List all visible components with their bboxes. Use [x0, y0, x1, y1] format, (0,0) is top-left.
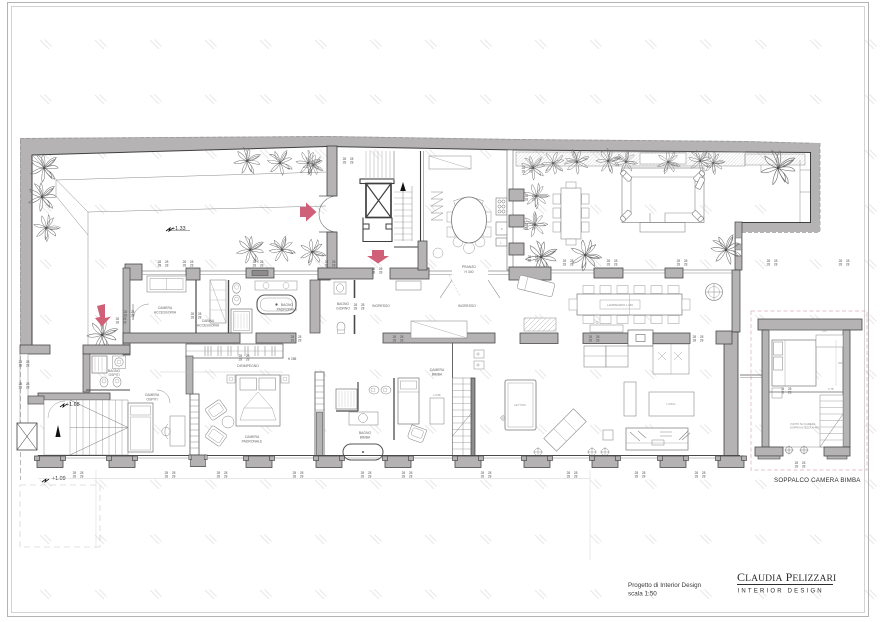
svg-text:CABINA: CABINA: [202, 319, 215, 323]
svg-text:250: 250: [822, 329, 827, 333]
svg-text:BAGNO: BAGNO: [337, 302, 350, 306]
svg-text:GIORNO: GIORNO: [336, 307, 350, 311]
svg-text:OSPITI: OSPITI: [108, 373, 119, 377]
svg-text:Progetto di Interior Design: Progetto di Interior Design: [628, 582, 702, 589]
svg-text:ACCESSORIA: ACCESSORIA: [197, 324, 220, 328]
svg-text:VUOTO SU CAMERA: VUOTO SU CAMERA: [790, 422, 816, 426]
svg-text:BIMBA: BIMBA: [360, 436, 371, 440]
svg-text:CAMERA: CAMERA: [430, 368, 445, 372]
svg-text:H 340: H 340: [464, 270, 473, 274]
svg-text:F: F: [501, 227, 503, 231]
svg-text:ACCESSORIA: ACCESSORIA: [154, 311, 177, 315]
svg-text:CAMERA: CAMERA: [245, 435, 260, 439]
svg-text:SOPPALCO CAMERA BIMBA: SOPPALCO CAMERA BIMBA: [774, 477, 861, 484]
svg-text:CAMERA: CAMERA: [158, 306, 173, 310]
svg-text:253: 253: [838, 361, 843, 365]
svg-text:+1.68: +1.68: [66, 402, 80, 408]
svg-text:DISIMPEGNO: DISIMPEGNO: [237, 364, 259, 368]
svg-text:BIMBA: BIMBA: [432, 373, 443, 377]
svg-text:PRANZO: PRANZO: [462, 265, 476, 269]
svg-text:PADRONALE: PADRONALE: [277, 308, 298, 312]
svg-text:+1.09: +1.09: [52, 476, 66, 482]
svg-text:h 75: h 75: [828, 387, 834, 391]
svg-text:OSPITI: OSPITI: [146, 398, 157, 402]
svg-text:BAGNO: BAGNO: [281, 303, 294, 307]
svg-text:DOPPIA ALTEZZA H 460: DOPPIA ALTEZZA H 460: [790, 426, 819, 430]
svg-text:LETTINO: LETTINO: [514, 403, 527, 407]
svg-text:+1.33: +1.33: [172, 226, 186, 232]
svg-text:H 168: H 168: [434, 393, 441, 397]
svg-text:CLAUDIA PELIZZARI: CLAUDIA PELIZZARI: [737, 570, 836, 584]
svg-text:LIVING: LIVING: [666, 402, 675, 406]
svg-text:INGRESSO: INGRESSO: [372, 304, 390, 308]
svg-text:CAMERA: CAMERA: [145, 393, 160, 397]
svg-text:PADRONALE: PADRONALE: [242, 440, 263, 444]
svg-text:INGRESSO: INGRESSO: [458, 304, 476, 308]
svg-text:H 288: H 288: [288, 357, 297, 361]
svg-text:INTERIOR DESIGN: INTERIOR DESIGN: [738, 589, 824, 595]
svg-text:scala 1:50: scala 1:50: [628, 591, 657, 598]
svg-text:BAGNO: BAGNO: [359, 431, 372, 435]
